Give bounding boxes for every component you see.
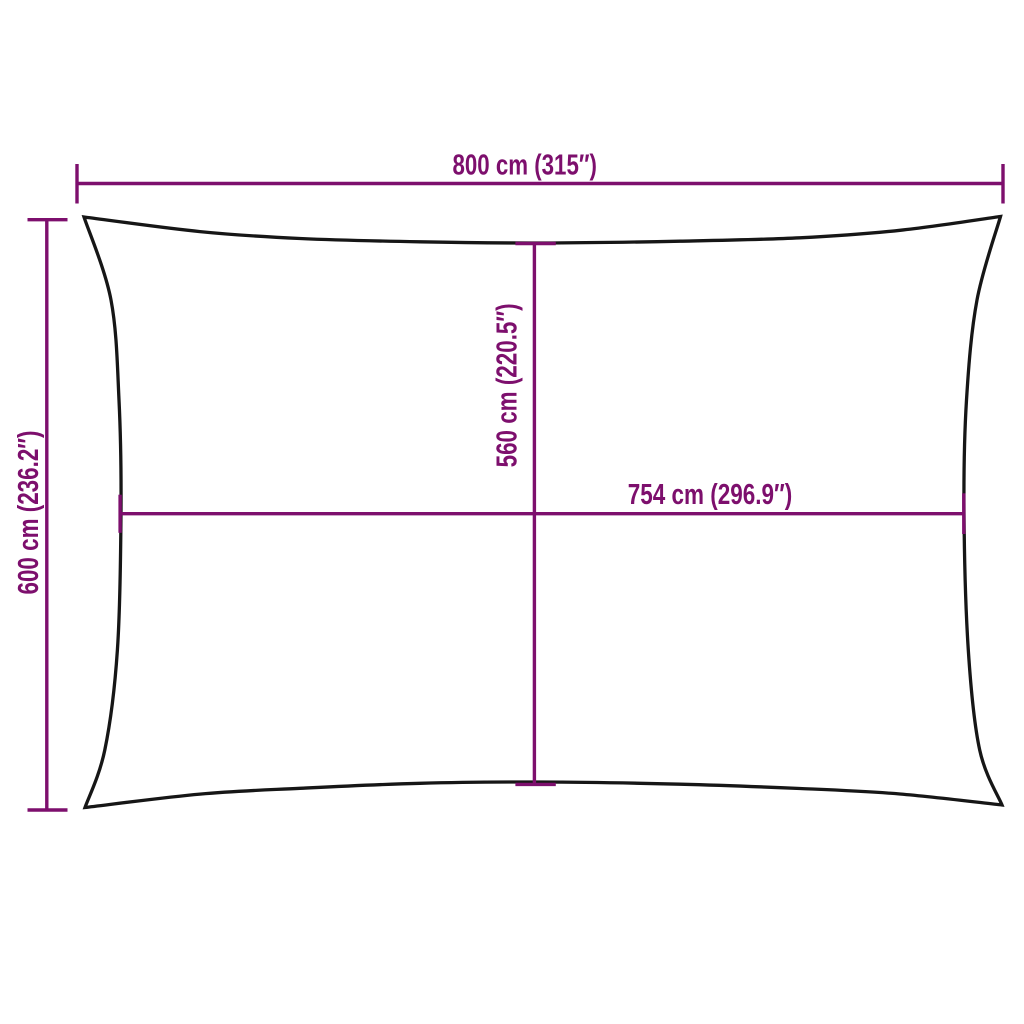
svg-text:800 cm (315″): 800 cm (315″) [452,150,597,182]
svg-text:600 cm (236.2″): 600 cm (236.2″) [13,431,45,595]
svg-text:560 cm (220.5″): 560 cm (220.5″) [492,303,524,467]
svg-text:754 cm (296.9″): 754 cm (296.9″) [628,479,793,511]
